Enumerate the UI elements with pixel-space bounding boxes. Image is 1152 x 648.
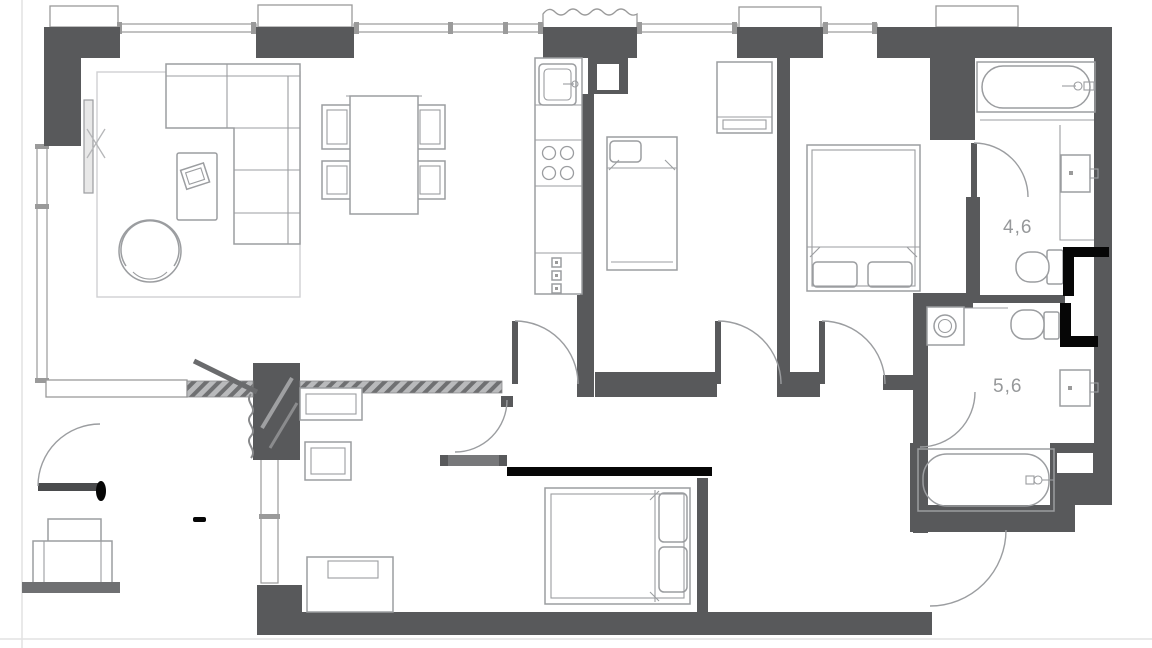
double-bed (807, 145, 920, 291)
door-bathroom-small (971, 143, 1028, 197)
washbasin (1060, 370, 1098, 406)
window-left (37, 146, 47, 382)
washbasin (1061, 155, 1098, 192)
lounge-chair (119, 220, 181, 282)
hallway-armchair (22, 519, 120, 593)
common-area (22, 519, 120, 593)
break-line (249, 394, 253, 458)
wardrobe (717, 62, 772, 133)
door-bedroom3 (930, 530, 1006, 606)
toilet (1016, 250, 1063, 284)
annotation-dash (193, 517, 206, 522)
label-bathroom-small-area: 4,6 (1003, 217, 1032, 238)
double-bed-2 (545, 488, 690, 604)
bathtub (918, 449, 1054, 511)
door-common-hall (38, 424, 106, 501)
dining-set (322, 96, 445, 214)
bedroom3-furniture (300, 388, 690, 612)
bathtub (977, 62, 1095, 112)
label-bathroom-large-area: 5,6 (993, 376, 1022, 397)
hall-partition (440, 396, 513, 466)
dining-chair (322, 105, 352, 149)
door-bedroom1 (715, 321, 781, 384)
dining-chair (415, 105, 445, 149)
window (823, 24, 877, 32)
bedroom1-furniture (607, 62, 772, 270)
washing-machine (927, 307, 1008, 345)
desk (307, 557, 393, 612)
door-bedroom2 (819, 321, 885, 384)
toilet (1011, 310, 1059, 339)
dining-table (350, 96, 418, 214)
balcony-box (50, 6, 118, 27)
window (120, 24, 256, 32)
single-bed (607, 137, 677, 270)
balcony-box (258, 5, 352, 27)
dresser (300, 388, 362, 420)
floor-plan: 4,6 5,6 (0, 0, 1152, 648)
chair (305, 442, 351, 480)
dining-chair (322, 161, 352, 199)
bedroom2-furniture (807, 145, 920, 291)
floor-plan-canvas: 4,6 5,6 (0, 0, 1152, 648)
dining-chair (415, 161, 445, 199)
tv (84, 100, 93, 193)
balcony-box (739, 7, 821, 28)
door-hall-lobby (455, 400, 507, 452)
door-bathroom-large (920, 392, 975, 447)
window (637, 24, 737, 32)
area-labels: 4,6 5,6 (993, 217, 1032, 397)
coffee-table (177, 153, 217, 220)
kitchen-fixtures (535, 58, 582, 294)
entrance-pier (253, 363, 300, 460)
annotation-corner-bottom (1060, 303, 1098, 347)
vent-shaft-wavy-top (543, 9, 637, 28)
balcony-box (936, 6, 1018, 27)
annotation-new-wall-line (507, 467, 712, 476)
door-living-room (512, 321, 578, 384)
living-room-furniture (84, 64, 445, 297)
wall-outlined (46, 380, 187, 397)
annotation-door-mark (96, 481, 106, 501)
